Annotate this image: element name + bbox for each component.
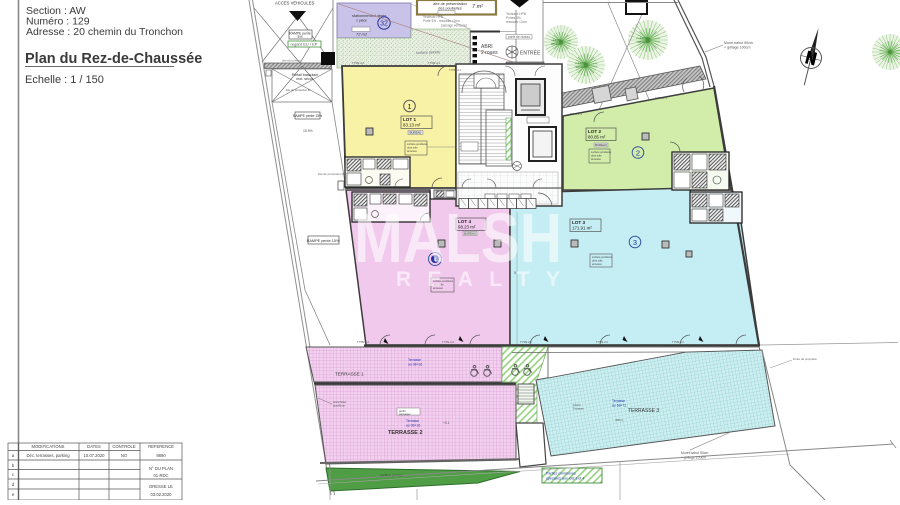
- svg-text:03.02.2020: 03.02.2020: [151, 492, 173, 497]
- svg-text:conifère: conifère: [638, 40, 649, 44]
- svg-text:des poubelles: des poubelles: [438, 7, 462, 11]
- svg-text:limite de propriété: limite de propriété: [793, 357, 817, 361]
- svg-text:File de protection bf: File de protection bf: [286, 88, 311, 92]
- svg-text:dont utile: dont utile: [592, 258, 603, 262]
- svg-text:porte de niveau: porte de niveau: [508, 35, 530, 39]
- svg-text:liée de protection bf: liée de protection bf: [318, 172, 344, 176]
- svg-text:RAMPE pente 15%: RAMPE pente 15%: [293, 114, 322, 118]
- svg-text:Echelle : 1 / 150: Echelle : 1 / 150: [25, 74, 104, 86]
- svg-text:chemin piéton: chemin piéton: [282, 59, 301, 63]
- svg-text:gravillons: gravillons: [333, 404, 345, 408]
- svg-text:aire de présentation: aire de présentation: [433, 2, 467, 6]
- svg-text:TERRASSE 3: TERRASSE 3: [628, 408, 659, 414]
- svg-text:annexes: annexes: [592, 263, 603, 266]
- svg-text:TERRASSE 1: TERRASSE 1: [335, 372, 364, 377]
- svg-text:TYPE 2.2: TYPE 2.2: [357, 340, 369, 344]
- svg-text:TYPE 2.2: TYPE 2.2: [596, 340, 608, 344]
- svg-text:spéciales aux lots 3 et 4: spéciales aux lots 3 et 4: [546, 477, 584, 481]
- svg-text:TYPE 2.1: TYPE 2.1: [655, 96, 667, 100]
- svg-text:83.13 m²: 83.13 m²: [403, 123, 421, 128]
- svg-text:MALSH: MALSH: [354, 199, 562, 277]
- svg-text:surface pondérée: surface pondérée: [407, 142, 428, 146]
- svg-text:CONTROLE: CONTROLE: [112, 444, 135, 449]
- svg-text:TYPE 2.2: TYPE 2.2: [672, 340, 684, 344]
- svg-text:+0.1: +0.1: [443, 421, 450, 425]
- svg-text:Parties communes: Parties communes: [546, 472, 576, 476]
- svg-text:Terrasse: Terrasse: [406, 419, 419, 423]
- svg-text:au 08+16: au 08+16: [406, 424, 420, 428]
- svg-text:mot. sécur.: mot. sécur.: [296, 77, 314, 81]
- svg-text:TYPE 2.2: TYPE 2.2: [520, 340, 532, 344]
- svg-text:TYPE 2.1: TYPE 2.1: [570, 112, 582, 116]
- svg-text:LOT 2: LOT 2: [588, 129, 601, 134]
- svg-text:TYPE 2.2: TYPE 2.2: [442, 340, 454, 344]
- svg-text:LOT 3: LOT 3: [572, 220, 585, 225]
- svg-text:5%: 5%: [298, 35, 303, 39]
- svg-text:surface pondérée: surface pondérée: [591, 150, 612, 154]
- svg-text:BUREAU: BUREAU: [595, 143, 607, 147]
- svg-text:N° DU PLAN: N° DU PLAN: [149, 466, 173, 471]
- svg-text:72 m2: 72 m2: [356, 32, 368, 37]
- svg-text:dont utile: dont utile: [591, 153, 602, 157]
- svg-text:surface pondérée: surface pondérée: [592, 255, 613, 259]
- svg-text:ressauts <2cm: ressauts <2cm: [506, 20, 527, 24]
- svg-text:TERRASSE 2: TERRASSE 2: [388, 430, 423, 436]
- svg-text:2 roues: 2 roues: [481, 50, 498, 56]
- svg-text:TYPE 4.1: TYPE 4.1: [428, 61, 440, 65]
- svg-text:+ grillage 100cm: + grillage 100cm: [724, 46, 750, 50]
- svg-text:ACCES VEHICULES: ACCES VEHICULES: [275, 1, 315, 6]
- svg-text:(83m): (83m): [615, 418, 623, 422]
- svg-text:Plan du Rez-de-Chaussée: Plan du Rez-de-Chaussée: [25, 51, 202, 67]
- svg-text:TYPE 4.2: TYPE 4.2: [352, 61, 364, 65]
- svg-text:Déc. terrasses, parking: Déc. terrasses, parking: [26, 453, 70, 458]
- svg-text:1: 1: [407, 102, 411, 111]
- svg-text:Muret bahut 50cm: Muret bahut 50cm: [681, 451, 709, 455]
- svg-text:TYPE 4.1: TYPE 4.1: [449, 68, 461, 72]
- svg-text:Adresse : 20 chemin du Troncho: Adresse : 20 chemin du Tronchon: [26, 26, 183, 38]
- svg-text:80.85 m²: 80.85 m²: [588, 135, 606, 140]
- svg-text:REFERENCE: REFERENCE: [148, 444, 174, 449]
- svg-text:32: 32: [380, 21, 388, 28]
- svg-text:dont utile: dont utile: [407, 145, 418, 149]
- svg-text:paysager: paysager: [399, 412, 411, 416]
- svg-text:Terrasse: Terrasse: [612, 399, 625, 403]
- svg-text:RAMPE pente 15%: RAMPE pente 15%: [307, 239, 340, 243]
- svg-text:DRESSE LE: DRESSE LE: [149, 484, 173, 489]
- svg-text:7 m²: 7 m²: [472, 4, 483, 10]
- svg-text:171.91 m²: 171.91 m²: [572, 226, 592, 231]
- svg-text:15.9%: 15.9%: [303, 129, 313, 133]
- svg-text:annexes: annexes: [591, 158, 602, 161]
- svg-text:Terrasse: Terrasse: [573, 407, 584, 411]
- svg-text:NO: NO: [121, 453, 128, 458]
- svg-text:conifère: conifère: [551, 42, 562, 46]
- svg-text:2: 2: [636, 149, 640, 158]
- svg-text:annexes: annexes: [407, 150, 418, 153]
- svg-text:1 place: 1 place: [356, 19, 367, 23]
- svg-text:Muret bahut 50cm: Muret bahut 50cm: [724, 41, 753, 45]
- svg-text:10.07.2020: 10.07.2020: [84, 453, 106, 458]
- svg-text:au 68+71: au 68+71: [612, 404, 626, 408]
- svg-text:conifère: conifère: [576, 65, 587, 69]
- svg-text:BUREAU: BUREAU: [410, 131, 422, 135]
- svg-text:DATES: DATES: [87, 444, 101, 449]
- svg-text:3: 3: [633, 238, 637, 247]
- svg-text:ENTRÉE: ENTRÉE: [520, 50, 541, 57]
- svg-text:regard EU / EP: regard EU / EP: [291, 42, 318, 47]
- svg-text:MODIFICATIONS: MODIFICATIONS: [32, 444, 65, 449]
- svg-text:9890: 9890: [156, 453, 166, 458]
- svg-text:au 08+16: au 08+16: [408, 363, 422, 367]
- svg-text:Terrasse: Terrasse: [408, 358, 421, 362]
- svg-text:Porte 3% - ressauts <2cm: Porte 3% - ressauts <2cm: [423, 19, 460, 23]
- svg-text:LOT 1: LOT 1: [403, 117, 416, 122]
- svg-text:01-RDC: 01-RDC: [153, 473, 168, 478]
- svg-text:passage véhicules: passage véhicules: [441, 24, 468, 28]
